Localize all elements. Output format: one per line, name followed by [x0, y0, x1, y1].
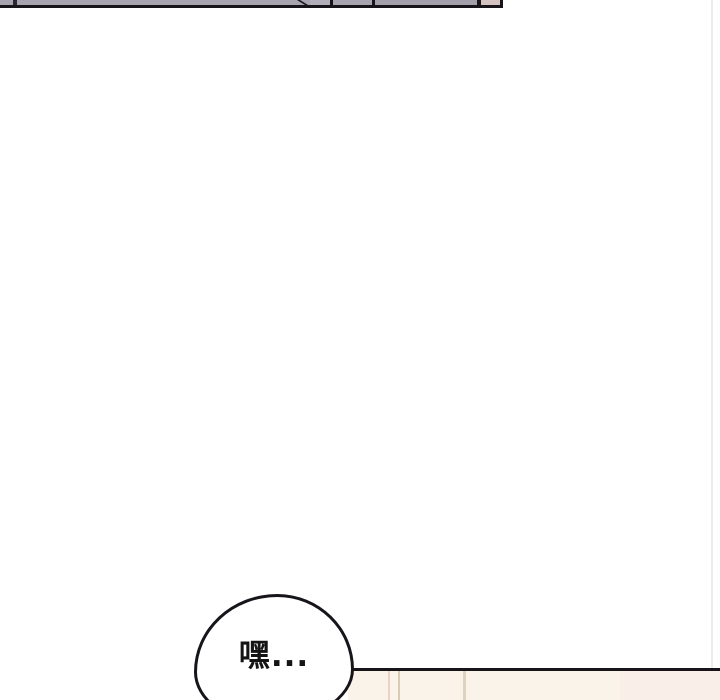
- comic-page: 嘿...: [0, 0, 720, 700]
- speech-bubble: 嘿...: [194, 594, 354, 700]
- next-panel-top-edge: [348, 668, 720, 700]
- panel-background-warm-area: [620, 671, 720, 700]
- background-edge-line: [463, 671, 466, 700]
- background-edge-line: [388, 671, 390, 700]
- background-edge-line: [398, 671, 400, 700]
- speech-bubble-text: 嘿...: [239, 641, 309, 672]
- previous-panel-bottom-edge: [0, 0, 503, 8]
- page-seam-line: [711, 0, 713, 669]
- panel-border-bottom: [0, 5, 503, 8]
- panel-border-right: [500, 0, 503, 8]
